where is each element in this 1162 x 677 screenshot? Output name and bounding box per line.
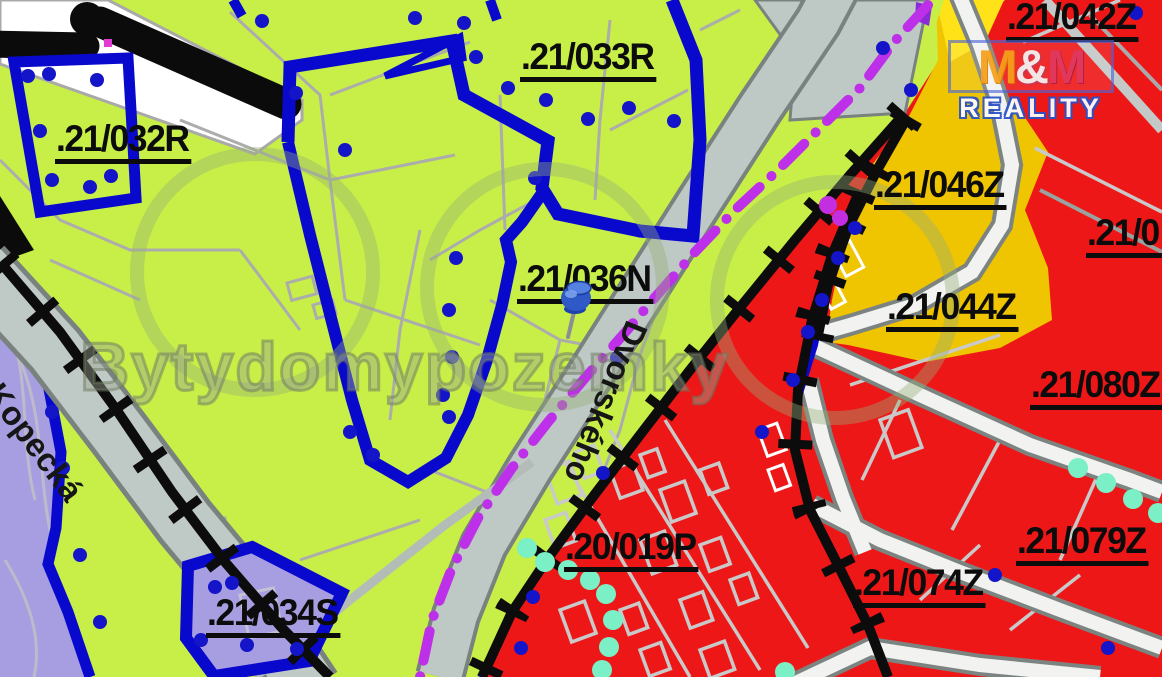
parcel-label-21-033R: .21/033R — [520, 38, 656, 82]
parcel-label-21-042Z: .21/042Z — [1006, 0, 1139, 42]
parcel-label-21-044Z: .21/044Z — [886, 288, 1019, 332]
parcel-label-21-074Z: .21/074Z — [853, 564, 986, 608]
parcel-label-20-019P: .20/019P — [564, 528, 699, 572]
mm-reality-logo-text: REALITY — [948, 93, 1114, 124]
parcel-label-21-032R: .21/032R — [55, 120, 191, 164]
parcel-label-21-046Z: .21/046Z — [874, 166, 1007, 210]
mm-reality-logo: M&M REALITY — [948, 40, 1114, 124]
logo-letter-m2: M — [1047, 40, 1084, 93]
parcel-label-21-034S: .21/034S — [206, 594, 341, 638]
parcel-label-21-079Z: .21/079Z — [1016, 522, 1149, 566]
mm-reality-logo-mark: M&M — [948, 40, 1114, 93]
logo-letter-m1: M — [978, 40, 1015, 93]
map-canvas[interactable]: Bytydomypozemky .21/032R .21/033R .21/03… — [0, 0, 1162, 677]
parcel-label-right-edge-cut: .21/0 — [1086, 214, 1162, 258]
pushpin-icon — [548, 278, 604, 342]
parcel-label-21-080Z: .21/080Z — [1030, 366, 1162, 410]
location-pushpin-marker[interactable] — [548, 278, 604, 342]
logo-ampersand: & — [1015, 40, 1047, 93]
